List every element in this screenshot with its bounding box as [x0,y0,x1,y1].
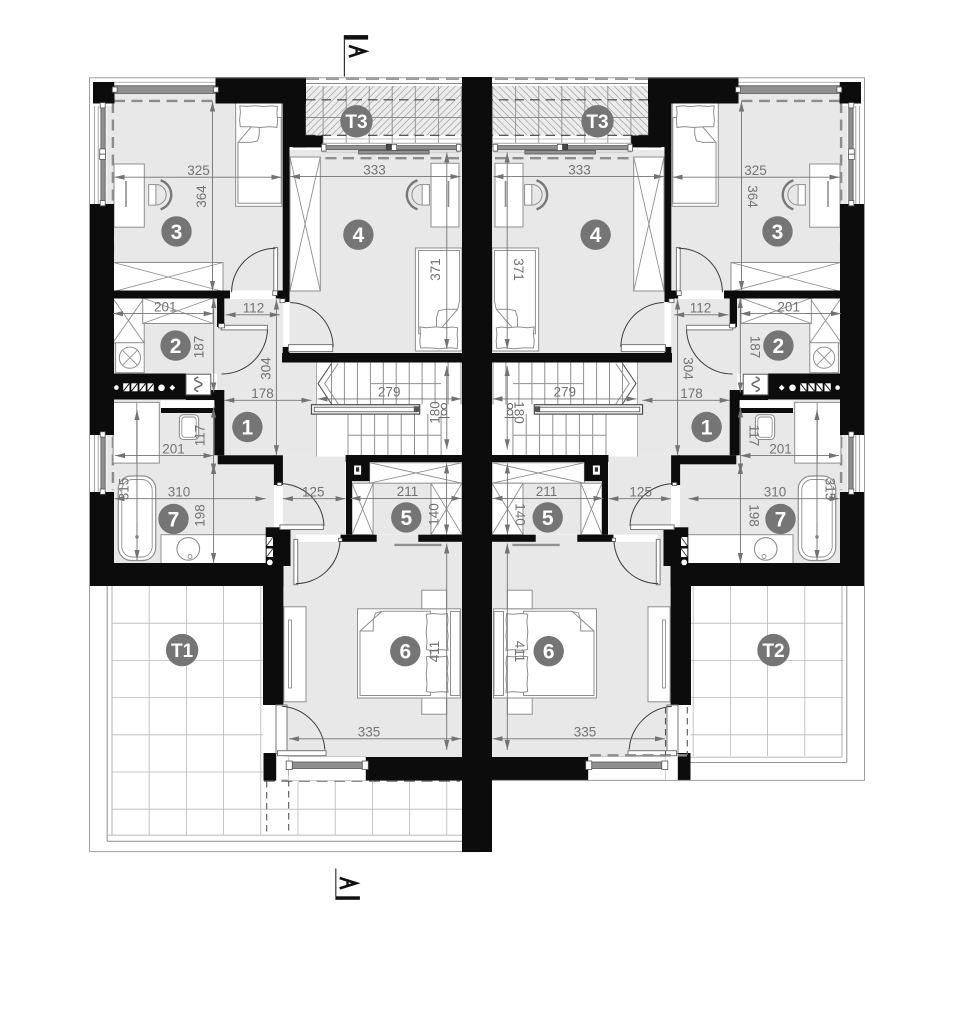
svg-text:5: 5 [400,507,412,530]
svg-text:325: 325 [744,163,767,178]
svg-text:3: 3 [171,221,183,244]
svg-text:279: 279 [554,385,577,400]
svg-text:304: 304 [258,357,273,380]
svg-text:7: 7 [168,509,180,532]
svg-text:T3: T3 [345,112,367,133]
svg-text:140: 140 [513,503,528,526]
svg-text:2: 2 [773,335,785,358]
svg-text:117: 117 [746,425,761,447]
svg-text:371: 371 [428,258,443,281]
svg-text:6: 6 [543,641,555,664]
svg-text:180: 180 [428,401,443,424]
svg-text:310: 310 [168,485,191,500]
svg-text:180: 180 [511,401,526,424]
svg-text:325: 325 [187,163,210,178]
svg-text:5: 5 [542,507,554,530]
svg-text:112: 112 [690,301,712,316]
svg-text:187: 187 [747,336,762,359]
svg-text:198: 198 [193,504,208,527]
svg-text:304: 304 [681,357,696,380]
svg-text:T2: T2 [762,641,784,662]
svg-text:6: 6 [399,641,411,664]
svg-text:112: 112 [243,301,265,316]
svg-text:125: 125 [629,485,652,500]
svg-text:201: 201 [777,299,800,314]
svg-text:364: 364 [745,185,760,208]
svg-text:211: 211 [397,484,419,499]
svg-text:364: 364 [194,185,209,208]
svg-text:T3: T3 [586,112,608,133]
svg-text:198: 198 [746,504,761,527]
svg-text:315: 315 [116,478,131,501]
svg-text:211: 211 [536,484,558,499]
svg-text:201: 201 [154,299,177,314]
svg-text:125: 125 [302,485,325,500]
svg-text:187: 187 [192,336,207,359]
svg-text:178: 178 [680,386,703,401]
svg-text:335: 335 [574,725,597,740]
svg-text:201: 201 [162,441,185,456]
svg-text:411: 411 [512,641,527,663]
svg-text:333: 333 [568,162,591,177]
svg-text:7: 7 [775,509,787,532]
svg-text:1: 1 [242,417,254,440]
svg-text:2: 2 [170,335,182,358]
svg-text:371: 371 [511,258,526,281]
svg-text:1: 1 [701,417,713,440]
svg-text:411: 411 [427,641,442,663]
svg-text:279: 279 [378,385,401,400]
svg-text:178: 178 [251,386,274,401]
svg-text:T1: T1 [171,641,194,662]
svg-text:3: 3 [772,221,784,244]
svg-text:315: 315 [823,478,838,501]
svg-text:335: 335 [358,725,381,740]
svg-text:117: 117 [193,425,208,447]
svg-text:333: 333 [363,162,386,177]
svg-text:4: 4 [353,224,365,247]
svg-text:201: 201 [769,441,792,456]
svg-text:4: 4 [590,224,602,247]
svg-text:310: 310 [764,485,787,500]
svg-text:140: 140 [426,503,441,526]
